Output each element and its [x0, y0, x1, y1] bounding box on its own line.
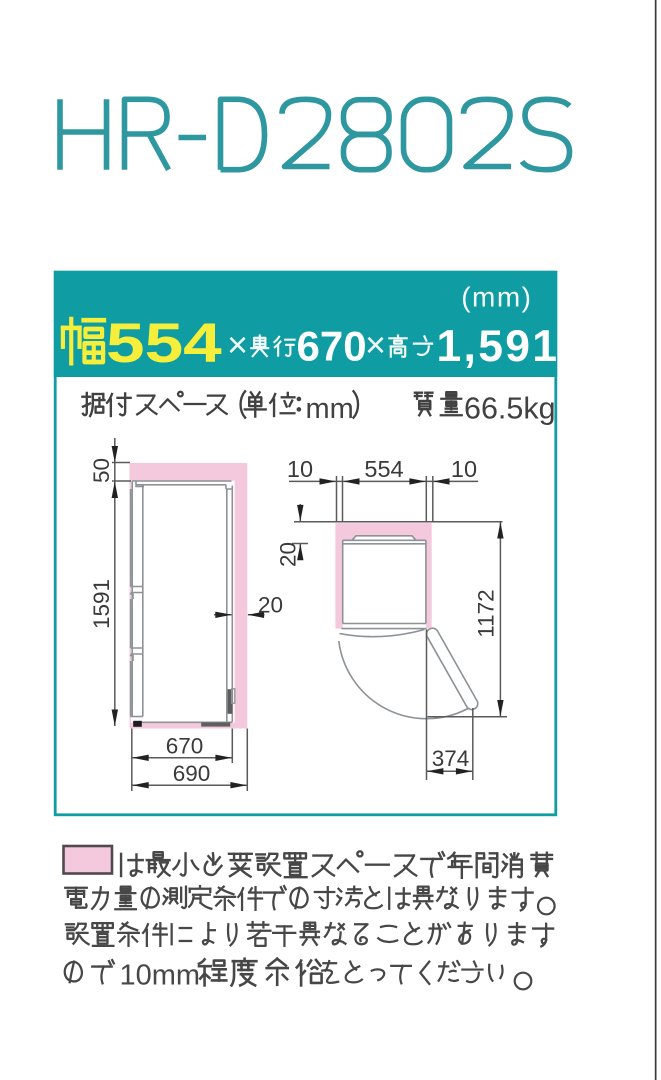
- svg-text:mm: mm: [306, 393, 354, 425]
- svg-text:50: 50: [89, 458, 114, 483]
- svg-text:690: 690: [173, 761, 211, 786]
- svg-text:10mm: 10mm: [120, 960, 201, 992]
- svg-text:554: 554: [364, 456, 403, 482]
- svg-text:20: 20: [276, 542, 301, 567]
- svg-text:554: 554: [106, 313, 222, 375]
- svg-text:10: 10: [451, 456, 477, 482]
- svg-text:670: 670: [297, 323, 367, 370]
- svg-text:66.5kg: 66.5kg: [464, 392, 556, 426]
- svg-text:1172: 1172: [474, 589, 499, 637]
- svg-text:20: 20: [258, 593, 283, 618]
- svg-text:×: ×: [227, 324, 248, 365]
- svg-text:1591: 1591: [89, 579, 114, 629]
- svg-text:(mm): (mm): [461, 282, 532, 313]
- svg-text:10: 10: [287, 456, 313, 482]
- svg-text:×: ×: [365, 324, 386, 365]
- svg-text:670: 670: [166, 734, 204, 759]
- svg-text:374: 374: [432, 746, 470, 771]
- svg-text:1,591: 1,591: [437, 322, 560, 371]
